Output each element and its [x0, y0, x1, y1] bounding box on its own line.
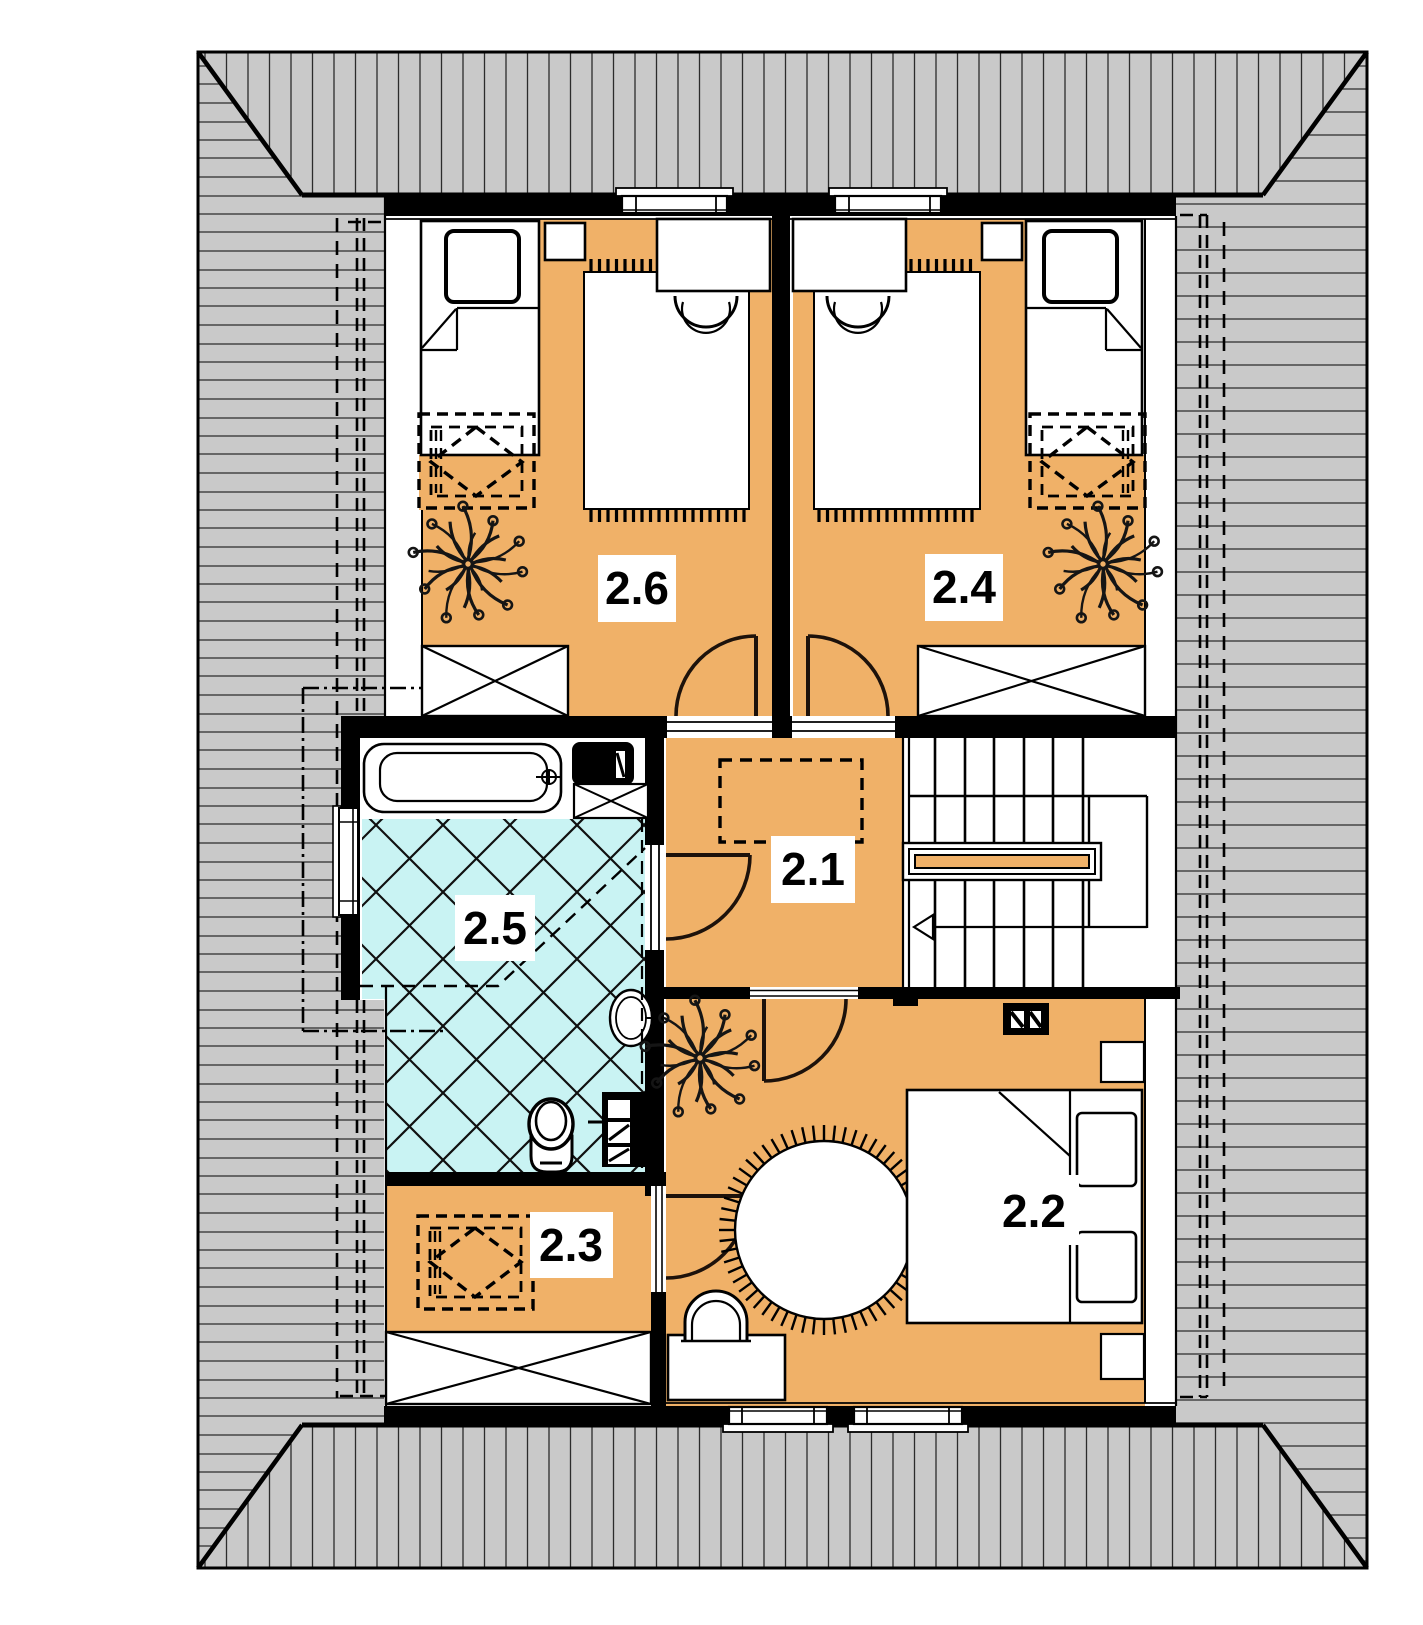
svg-text:2.3: 2.3: [539, 1219, 603, 1271]
svg-text:2.4: 2.4: [932, 561, 996, 613]
svg-text:2.2: 2.2: [1002, 1185, 1066, 1237]
svg-text:2.1: 2.1: [781, 843, 845, 895]
svg-text:2.5: 2.5: [463, 902, 527, 954]
svg-text:2.6: 2.6: [605, 562, 669, 614]
